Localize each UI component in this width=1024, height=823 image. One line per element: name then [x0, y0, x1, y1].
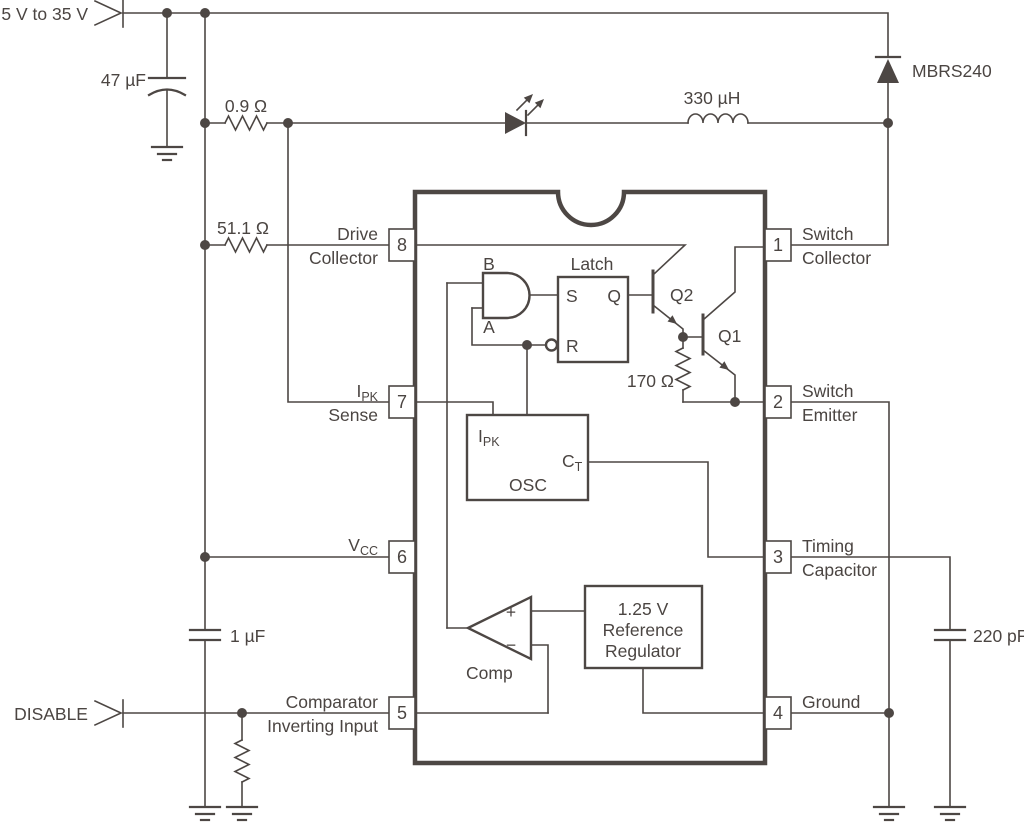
drive-resistor-symbol [225, 238, 267, 252]
q1-label: Q1 [718, 326, 741, 346]
pin3-label-line1: Timing [802, 536, 854, 556]
pin2-label-line1: Switch [802, 381, 854, 401]
osc-title: OSC [509, 475, 547, 495]
ground-vcc-line [190, 807, 220, 820]
pin3-number: 3 [773, 547, 783, 567]
ground-timing-cap [935, 807, 965, 820]
inductor-symbol [688, 114, 748, 123]
latch-title: Latch [571, 254, 614, 274]
diode-part-number: MBRS240 [912, 61, 992, 81]
led-arrow1-shaft [517, 100, 527, 110]
ground-input-cap [152, 147, 182, 160]
and-input-a-label: A [483, 317, 495, 337]
pin8-label-line1: Drive [337, 224, 378, 244]
ground-pin4 [874, 807, 904, 820]
inductor-value: 330 µH [684, 88, 741, 108]
pin5-label-line1: Comparator [286, 692, 379, 712]
junction-dot [283, 118, 293, 128]
q2-label: Q2 [670, 285, 693, 305]
base-resistor-value: 170 Ω [627, 371, 674, 391]
base-resistor-symbol [676, 348, 690, 390]
disable-pulldown-resistor-symbol [235, 740, 249, 782]
and-gate-symbol [483, 273, 530, 318]
comparator-plus-sign: + [506, 602, 516, 622]
latch-q-label: Q [607, 286, 621, 306]
reference-line3: Regulator [605, 641, 681, 661]
pin8-number: 8 [397, 235, 407, 255]
led-triangle [505, 112, 526, 134]
led-arrow2-shaft [528, 105, 538, 115]
pin5-label-line2: Inverting Input [267, 716, 378, 736]
comparator-minus-wire [531, 645, 548, 713]
junction-dot [883, 118, 893, 128]
transistor-q1 [703, 247, 765, 402]
junction-dot [162, 8, 172, 18]
comparator-minus-sign: − [506, 635, 516, 655]
schematic-page: 8 7 6 5 1 2 3 4 5 V to 35 V DISABLE 47 µ… [0, 0, 1024, 823]
diode-triangle [877, 59, 899, 83]
pin4-label: Ground [802, 692, 860, 712]
q2-emitter-arrow [668, 315, 678, 324]
pin1-label-line2: Collector [802, 248, 871, 268]
disable-arrow-icon [95, 701, 121, 725]
disable-input-label: DISABLE [14, 704, 88, 724]
pin6-label: VCC [348, 535, 378, 558]
comparator-label: Comp [466, 663, 513, 683]
q1-emitter-arrow [719, 361, 729, 370]
junction-dot [200, 240, 210, 250]
pin7-to-osc-wire [415, 402, 493, 415]
vin-rail-wire [123, 13, 888, 57]
pin2-gnd-wire [788, 402, 889, 807]
schematic-canvas: 8 7 6 5 1 2 3 4 5 V to 35 V DISABLE 47 µ… [0, 0, 1024, 823]
input-cap-value: 47 µF [101, 70, 146, 90]
drive-resistor-value: 51.1 Ω [217, 218, 269, 238]
reference-line2: Reference [603, 620, 684, 640]
reference-to-pin4-wire [643, 668, 765, 713]
pin7-number: 7 [397, 392, 407, 412]
sense-resistor-symbol [225, 116, 267, 130]
ground-pulldown [227, 807, 257, 820]
sense-resistor-value: 0.9 Ω [225, 96, 267, 116]
latch-r-inverter-bubble [546, 340, 557, 351]
timing-cap-value: 220 pF [973, 626, 1024, 646]
pin1-number: 1 [773, 235, 783, 255]
vcc-capacitor [190, 630, 220, 640]
pin8-to-q2-collector-wire [415, 245, 685, 274]
pin2-number: 2 [773, 392, 783, 412]
power-arrow-icon [95, 1, 121, 25]
pin2-label-line2: Emitter [802, 405, 858, 425]
pin5-number: 5 [397, 703, 407, 723]
and-input-b-label: B [483, 254, 495, 274]
pin3-label-line2: Capacitor [802, 560, 877, 580]
latch-r-label: R [566, 336, 579, 356]
q1-collector [703, 247, 765, 320]
junction-dot [200, 118, 210, 128]
ct-to-pin3-wire [588, 462, 765, 557]
junction-dot [200, 552, 210, 562]
pin6-number: 6 [397, 547, 407, 567]
junction-dot [522, 340, 532, 350]
q1-emitter [703, 350, 735, 402]
pin7-label-line2: Sense [328, 405, 378, 425]
junction-dot [678, 332, 688, 342]
junction-dot [730, 397, 740, 407]
diode-to-pin1-wire [788, 82, 888, 245]
pin1-label-line1: Switch [802, 224, 854, 244]
pin4-number: 4 [773, 703, 783, 723]
pin7-label-line1: IPK [356, 381, 378, 404]
junction-dot [237, 708, 247, 718]
disable-input-connector [95, 700, 123, 727]
pin8-label-line2: Collector [309, 248, 378, 268]
junction-dot [884, 708, 894, 718]
ic-internals [415, 245, 765, 713]
power-input-connector [95, 0, 123, 27]
junction-dot [200, 8, 210, 18]
led-symbol [505, 94, 544, 135]
power-input-label: 5 V to 35 V [1, 4, 88, 24]
timing-capacitor [935, 630, 965, 640]
vcc-cap-value: 1 µF [230, 626, 265, 646]
reference-line1: 1.25 V [618, 599, 669, 619]
comparator-symbol [468, 597, 531, 659]
latch-s-label: S [566, 286, 578, 306]
schottky-diode-symbol [876, 57, 900, 83]
